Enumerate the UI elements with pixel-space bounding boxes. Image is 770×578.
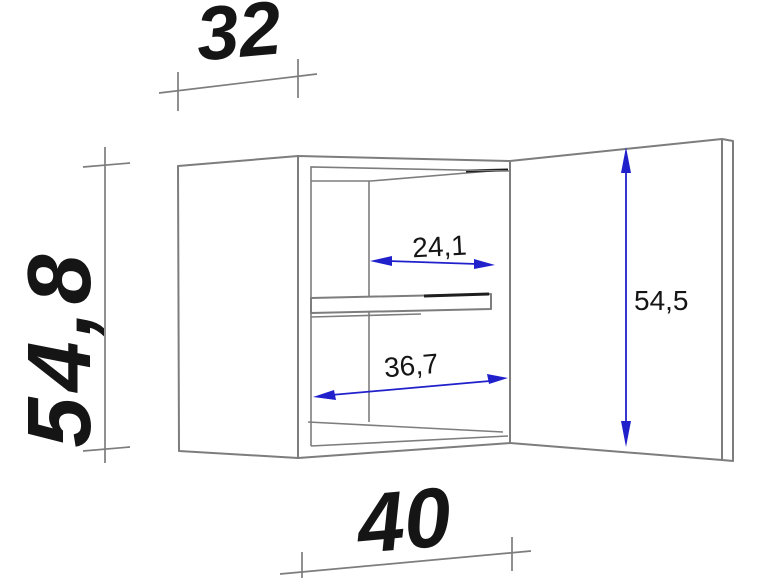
lower-inner-width-label: 36,7 — [383, 348, 440, 384]
shelf-shadow-line — [311, 314, 421, 317]
upper-inner-width-label: 24,1 — [411, 230, 467, 264]
width-dimension: 40 — [280, 469, 531, 578]
drawing-canvas: 32 54,8 40 — [0, 0, 770, 578]
height-dimension: 54,8 — [10, 147, 130, 463]
upper-inner-width-arrow-left — [370, 256, 392, 266]
door-panel — [510, 139, 733, 461]
lower-inner-width-arrow-right — [487, 374, 508, 384]
upper-inner-width-arrow-right — [474, 259, 495, 269]
shelf — [311, 294, 491, 313]
left-side-panel — [178, 156, 298, 458]
depth-label: 32 — [193, 0, 285, 78]
cabinet-dimension-drawing: 32 54,8 40 — [0, 0, 770, 578]
height-tick-top — [83, 163, 130, 167]
door-height-label: 54,5 — [634, 285, 689, 316]
width-label: 40 — [351, 469, 454, 571]
lower-inner-width-line — [331, 381, 490, 395]
height-label: 54,8 — [10, 248, 110, 447]
lower-inner-width-dimension: 36,7 — [313, 348, 508, 400]
floor-back-edge — [308, 422, 503, 432]
depth-dimension: 32 — [159, 0, 317, 111]
shelf-dark-edge — [424, 294, 489, 296]
upper-inner-width-dimension: 24,1 — [370, 230, 495, 269]
lower-inner-width-arrow-left — [313, 390, 336, 400]
depth-dimension-line — [159, 74, 317, 93]
